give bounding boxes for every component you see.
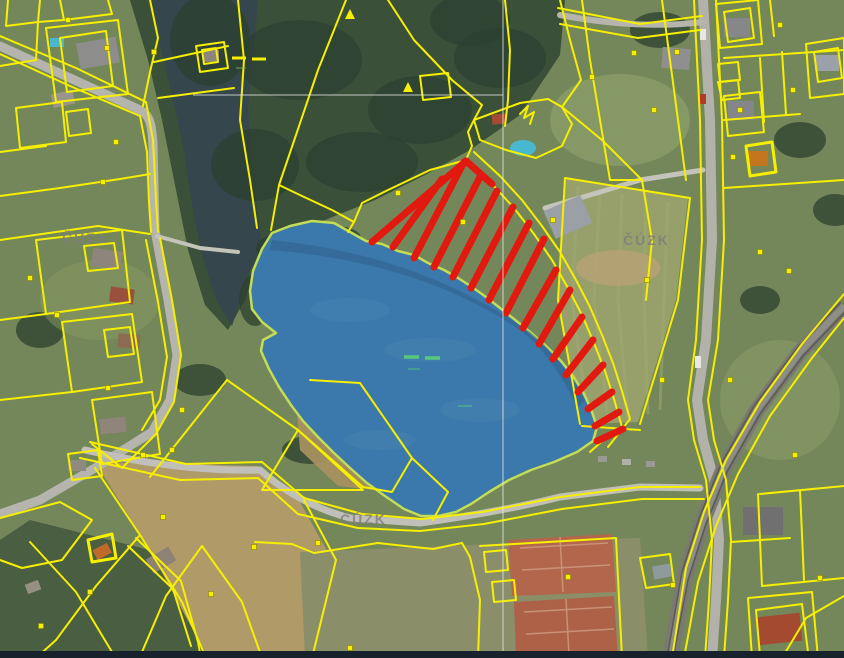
cuzk-watermark: ČÚZK bbox=[340, 510, 387, 527]
map-bottom-edge bbox=[0, 651, 844, 658]
parcel-marker bbox=[396, 191, 401, 196]
parcel-marker bbox=[348, 646, 353, 651]
parcel-marker bbox=[791, 88, 796, 93]
parcel-marker bbox=[152, 50, 157, 55]
parcel-marker bbox=[738, 108, 743, 113]
parcel-marker bbox=[728, 378, 733, 383]
parcel-marker bbox=[170, 448, 175, 453]
building bbox=[700, 29, 706, 40]
tree-canopy bbox=[740, 286, 780, 314]
building bbox=[598, 456, 607, 462]
parcel-marker bbox=[793, 453, 798, 458]
parcel-marker bbox=[731, 155, 736, 160]
parcel-marker bbox=[551, 218, 556, 223]
building bbox=[695, 356, 701, 368]
building bbox=[815, 55, 839, 71]
building bbox=[700, 94, 706, 104]
parcel-marker bbox=[101, 180, 106, 185]
parcel-marker bbox=[180, 408, 185, 413]
parcel-marker bbox=[39, 624, 44, 629]
parcel-marker bbox=[55, 313, 60, 318]
parcel-marker bbox=[105, 46, 110, 51]
parcel-marker bbox=[316, 541, 321, 546]
parcel-marker bbox=[671, 583, 676, 588]
tree-canopy bbox=[630, 12, 690, 48]
parcel-marker bbox=[675, 50, 680, 55]
parcel-marker bbox=[652, 108, 657, 113]
parcel-marker bbox=[632, 51, 637, 56]
parcel-marker bbox=[88, 590, 93, 595]
parcel-marker bbox=[66, 18, 71, 23]
building bbox=[646, 461, 655, 467]
parcel-marker bbox=[461, 220, 466, 225]
parcel-marker bbox=[114, 140, 119, 145]
parcel-marker bbox=[106, 386, 111, 391]
building bbox=[743, 507, 783, 535]
parcel-marker bbox=[660, 378, 665, 383]
map-canvas[interactable]: ČÚZK ČÚZK ČÚZK bbox=[0, 0, 844, 658]
cadastral-map: ČÚZK ČÚZK ČÚZK bbox=[0, 0, 844, 658]
parcel-marker bbox=[209, 592, 214, 597]
parcel-marker bbox=[787, 269, 792, 274]
cuzk-watermark: ČÚZK bbox=[62, 229, 109, 246]
cuzk-watermark: ČÚZK bbox=[623, 231, 670, 248]
building bbox=[748, 151, 768, 166]
parcel-marker bbox=[161, 515, 166, 520]
parcel-marker bbox=[28, 276, 33, 281]
building bbox=[492, 113, 507, 124]
parcel-marker bbox=[566, 575, 571, 580]
tree-canopy bbox=[368, 76, 472, 144]
parcel-marker bbox=[252, 545, 257, 550]
parcel-marker bbox=[141, 453, 146, 458]
parcel-marker bbox=[818, 576, 823, 581]
tree-canopy bbox=[774, 122, 826, 158]
parcel-marker bbox=[778, 23, 783, 28]
parcel-marker bbox=[758, 250, 763, 255]
parcel-marker bbox=[645, 278, 650, 283]
building bbox=[756, 613, 803, 645]
parcel-marker bbox=[590, 75, 595, 80]
building bbox=[622, 459, 631, 465]
building bbox=[99, 417, 126, 435]
